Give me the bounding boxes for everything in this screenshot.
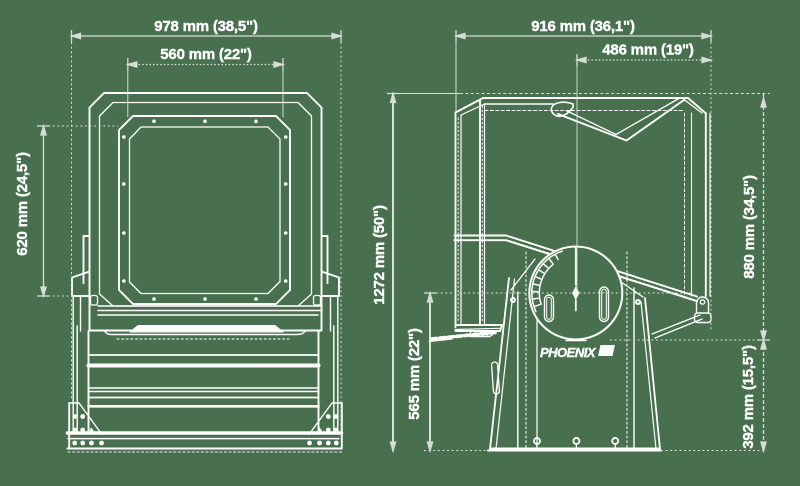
svg-text:PHOENIX: PHOENIX — [540, 345, 597, 360]
svg-text:916 mm (36,1"): 916 mm (36,1") — [531, 18, 635, 35]
svg-text:1272 mm (50"): 1272 mm (50") — [371, 205, 388, 305]
svg-text:620 mm (24,5"): 620 mm (24,5") — [14, 152, 31, 256]
svg-text:880 mm (34,5"): 880 mm (34,5") — [741, 175, 758, 279]
svg-text:978 mm (38,5"): 978 mm (38,5") — [154, 18, 258, 35]
svg-text:486 mm (19"): 486 mm (19") — [602, 42, 694, 59]
svg-text:392 mm (15,5"): 392 mm (15,5") — [740, 345, 757, 449]
svg-text:560 mm (22"): 560 mm (22") — [160, 46, 252, 63]
svg-text:565 mm (22"): 565 mm (22") — [406, 328, 423, 420]
